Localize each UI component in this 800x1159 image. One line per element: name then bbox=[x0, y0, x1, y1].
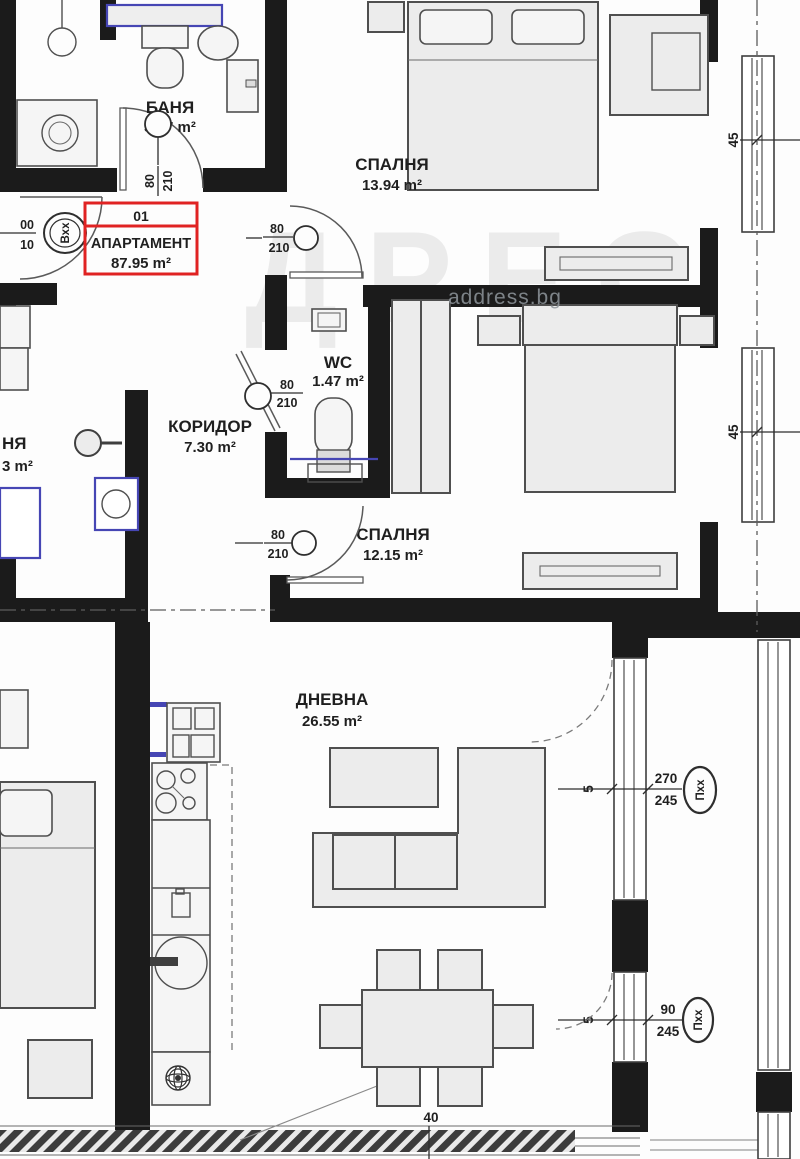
balcony-small-window bbox=[614, 972, 646, 1062]
wardrobe bbox=[610, 15, 708, 115]
window-small-code: Пхх bbox=[693, 1009, 705, 1031]
svg-text:80: 80 bbox=[143, 174, 157, 188]
entrance-code: Вхх bbox=[60, 222, 72, 244]
neighbor-pillow bbox=[0, 790, 52, 836]
svg-text:210: 210 bbox=[277, 396, 298, 410]
svg-text:210: 210 bbox=[269, 241, 290, 255]
window-small-height: 245 bbox=[657, 1024, 680, 1039]
corridor-area: 7.30 m² bbox=[184, 439, 236, 456]
wardrobe-door bbox=[392, 300, 421, 493]
bedroom2-door-leaf bbox=[287, 577, 363, 583]
wc-sink bbox=[312, 309, 346, 331]
bedroom1-name: СПАЛНЯ bbox=[355, 155, 428, 174]
corridor-name: КОРИДОР bbox=[168, 417, 252, 436]
nightstand bbox=[368, 2, 404, 32]
wc-toilet-base bbox=[317, 450, 350, 472]
chair bbox=[320, 1005, 363, 1048]
pillow bbox=[512, 10, 584, 44]
dim-right-upper: 45 bbox=[726, 132, 741, 148]
nightstand bbox=[478, 316, 520, 345]
chair bbox=[490, 1005, 533, 1048]
window-small-width: 90 bbox=[660, 1002, 675, 1017]
bedroom2-area: 12.15 m² bbox=[363, 547, 423, 564]
bedroom1-window bbox=[742, 56, 774, 232]
living-name: ДНЕВНА bbox=[296, 690, 369, 709]
bedroom2-window bbox=[742, 348, 774, 522]
neighbor-room-label: НЯ bbox=[2, 434, 27, 453]
balcony-large-window bbox=[614, 658, 646, 900]
bathroom-door-knob bbox=[145, 111, 171, 137]
neighbor-table bbox=[28, 1040, 92, 1098]
washing-machine bbox=[17, 100, 97, 166]
dim-right-lower: 45 bbox=[726, 424, 741, 440]
dim-balcony-upper: 5 bbox=[581, 785, 596, 793]
floor-plan: ДРЕС bbox=[0, 0, 800, 1159]
entrance-dim-bottom: 10 bbox=[20, 238, 34, 252]
apartment-title: АПАРТАМЕНТ bbox=[91, 236, 191, 252]
nightstand bbox=[680, 316, 714, 345]
dim-bottom: 40 bbox=[423, 1110, 438, 1125]
dim-balcony-lower: 5 bbox=[581, 1016, 596, 1024]
watermark-text: address.bg bbox=[448, 286, 562, 309]
vent-icon bbox=[165, 1065, 190, 1090]
chair bbox=[438, 1063, 482, 1106]
dining-table bbox=[362, 990, 493, 1067]
apartment-number: 01 bbox=[133, 208, 149, 224]
svg-text:80: 80 bbox=[271, 528, 285, 542]
floor-plan-screenshot: ДРЕС bbox=[0, 0, 800, 1159]
bed bbox=[525, 345, 675, 492]
sofa-cushion bbox=[333, 835, 395, 889]
wc-toilet bbox=[315, 398, 352, 455]
faucet bbox=[150, 957, 178, 966]
wc-area: 1.47 m² bbox=[312, 373, 364, 390]
bedroom1-area: 13.94 m² bbox=[362, 177, 422, 194]
pillow bbox=[420, 10, 492, 44]
chair bbox=[377, 950, 420, 993]
svg-text:210: 210 bbox=[268, 547, 289, 561]
svg-text:80: 80 bbox=[270, 222, 284, 236]
bed-headboard bbox=[523, 305, 677, 345]
bedroom1-door-knob bbox=[294, 226, 318, 250]
chair bbox=[438, 950, 482, 993]
wc-name: WC bbox=[324, 353, 352, 372]
entrance-dim-top: 00 bbox=[20, 218, 34, 232]
living-area: 26.55 m² bbox=[302, 713, 362, 730]
bedroom2-name: СПАЛНЯ bbox=[356, 525, 429, 544]
dresser bbox=[545, 247, 688, 280]
wardrobe-door bbox=[421, 300, 450, 493]
toilet-bowl bbox=[147, 48, 183, 88]
neighbor-door-knob bbox=[75, 430, 101, 456]
wc-door-knob bbox=[245, 383, 271, 409]
living-room: ДНЕВНА 26.55 m² bbox=[296, 690, 545, 1106]
kitchen-cabinet-grid bbox=[167, 703, 220, 762]
svg-text:210: 210 bbox=[161, 171, 175, 192]
dresser bbox=[523, 553, 677, 589]
svg-text:80: 80 bbox=[280, 378, 294, 392]
coffee-table bbox=[330, 748, 438, 807]
toilet-tank bbox=[142, 26, 188, 48]
bathroom-door-leaf bbox=[120, 108, 126, 190]
bathroom-sink bbox=[198, 26, 238, 60]
bedroom2-door-knob bbox=[292, 531, 316, 555]
neighbor-tub bbox=[0, 488, 40, 558]
neighbor-area-label: 3 m² bbox=[2, 458, 33, 475]
stove bbox=[152, 763, 207, 820]
cabinet-handle bbox=[246, 80, 256, 87]
apartment-area: 87.95 m² bbox=[111, 255, 171, 272]
bathroom-vanity bbox=[107, 5, 222, 26]
sofa-cushion bbox=[395, 835, 457, 889]
window-large-code: Пхх bbox=[695, 779, 707, 801]
window-large-height: 245 bbox=[655, 793, 678, 808]
bedroom1-door-leaf bbox=[290, 272, 363, 278]
chair bbox=[377, 1063, 420, 1106]
window-large-width: 270 bbox=[655, 771, 678, 786]
